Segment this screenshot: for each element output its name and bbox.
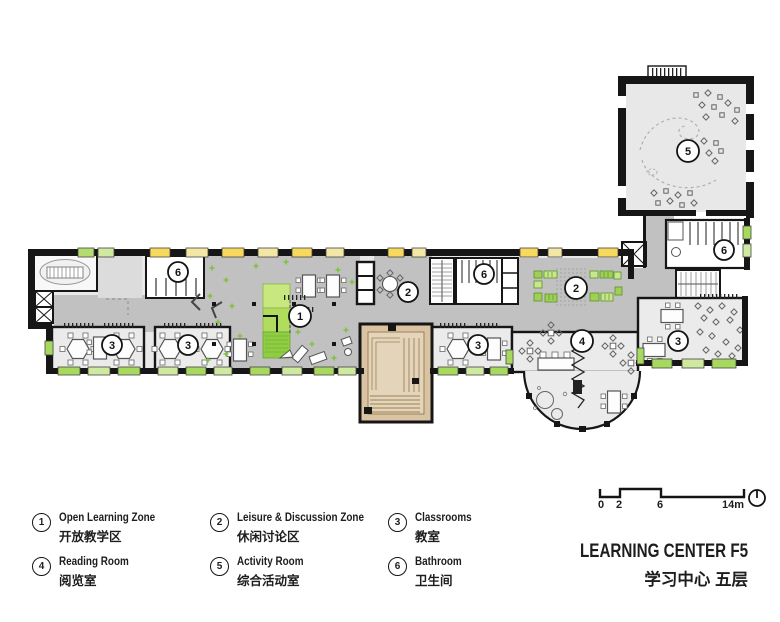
legend-item-activity-room: 5 Activity Room 综合活动室: [210, 556, 314, 589]
legend-badge-3: 3: [388, 513, 407, 532]
service-shaft: [357, 262, 374, 304]
title-english: LEARNING CENTER F5: [580, 541, 748, 563]
scale-label-2: 2: [616, 499, 622, 511]
svg-text:6: 6: [175, 267, 181, 279]
svg-text:1: 1: [297, 311, 303, 323]
auditorium-steps: [360, 324, 432, 422]
scale-label-6: 6: [657, 499, 663, 511]
legend-label-en: Leisure & Discussion Zone: [237, 512, 364, 524]
legend-label-zh: 教室: [415, 526, 481, 545]
legend-badge-2: 2: [210, 513, 229, 532]
elevators-left: [35, 291, 53, 323]
classroom-1: [52, 323, 144, 371]
legend-badge-6: 6: [388, 557, 407, 576]
svg-text:3: 3: [675, 336, 681, 348]
badge-activity: 5: [677, 140, 699, 162]
legend-label-zh: 阅览室: [59, 570, 140, 589]
svg-text:2: 2: [405, 287, 411, 299]
legend-label-zh: 卫生间: [415, 570, 469, 589]
badge-classroom-1: 3: [102, 335, 122, 355]
legend-label-en: Open Learning Zone: [59, 512, 155, 524]
legend-label-en: Bathroom: [415, 556, 462, 568]
svg-text:6: 6: [481, 269, 487, 281]
badge-classroom-4: 3: [668, 331, 688, 351]
stair-right: [676, 270, 720, 298]
legend-badge-4: 4: [32, 557, 51, 576]
badge-reading: 4: [571, 330, 593, 352]
svg-text:6: 6: [721, 245, 727, 257]
classroom-right: [638, 294, 746, 363]
bathroom-right: [666, 220, 746, 268]
legend-item-classrooms: 3 Classrooms 教室: [388, 512, 481, 545]
scale-bar-graphic: [598, 486, 748, 499]
legend-label-en: Reading Room: [59, 556, 129, 568]
legend-badge-1: 1: [32, 513, 51, 532]
legend-item-open-learning: 1 Open Learning Zone 开放教学区: [32, 512, 171, 545]
stair-room-left: [33, 253, 97, 291]
svg-text:5: 5: [685, 146, 691, 158]
badge-classroom-2: 3: [178, 335, 198, 355]
badge-classroom-3: 3: [468, 335, 488, 355]
badge-leisure-main: 2: [565, 277, 587, 299]
badge-leisure-small: 2: [398, 282, 418, 302]
legend-badge-5: 5: [210, 557, 229, 576]
scale-label-14: 14m: [722, 499, 744, 511]
legend-item-bathroom: 6 Bathroom 卫生间: [388, 556, 469, 589]
drawing-sheet: 1 2 2 3 3 3 3 4 5 6 6 6 1 Open Learning …: [0, 0, 780, 622]
legend-item-leisure: 2 Leisure & Discussion Zone 休闲讨论区: [210, 512, 385, 545]
badge-open-learning: 1: [289, 305, 311, 327]
stair-mid: [430, 258, 454, 304]
badge-bathroom-2: 6: [474, 264, 494, 284]
legend-label-zh: 开放教学区: [59, 526, 171, 545]
svg-text:2: 2: [573, 283, 579, 295]
title-chinese: 学习中心 五层: [538, 566, 748, 590]
svg-text:3: 3: [109, 340, 115, 352]
north-arrow-icon: [746, 487, 768, 509]
legend-label-en: Classrooms: [415, 512, 472, 524]
floor-plan: 1 2 2 3 3 3 3 4 5 6 6 6: [0, 0, 780, 470]
legend-label-zh: 休闲讨论区: [237, 526, 385, 545]
svg-text:4: 4: [579, 336, 586, 348]
scale-label-0: 0: [598, 499, 604, 511]
badge-bathroom-1: 6: [168, 262, 188, 282]
scale-bar: 0 2 6 14m: [598, 486, 748, 512]
drawing-title: LEARNING CENTER F5 学习中心 五层: [538, 541, 748, 590]
badge-bathroom-3: 6: [714, 240, 734, 260]
legend-item-reading-room: 4 Reading Room 阅览室: [32, 556, 140, 589]
legend-label-en: Activity Room: [237, 556, 304, 568]
svg-text:3: 3: [185, 340, 191, 352]
legend-label-zh: 综合活动室: [237, 570, 314, 589]
svg-text:3: 3: [475, 340, 481, 352]
